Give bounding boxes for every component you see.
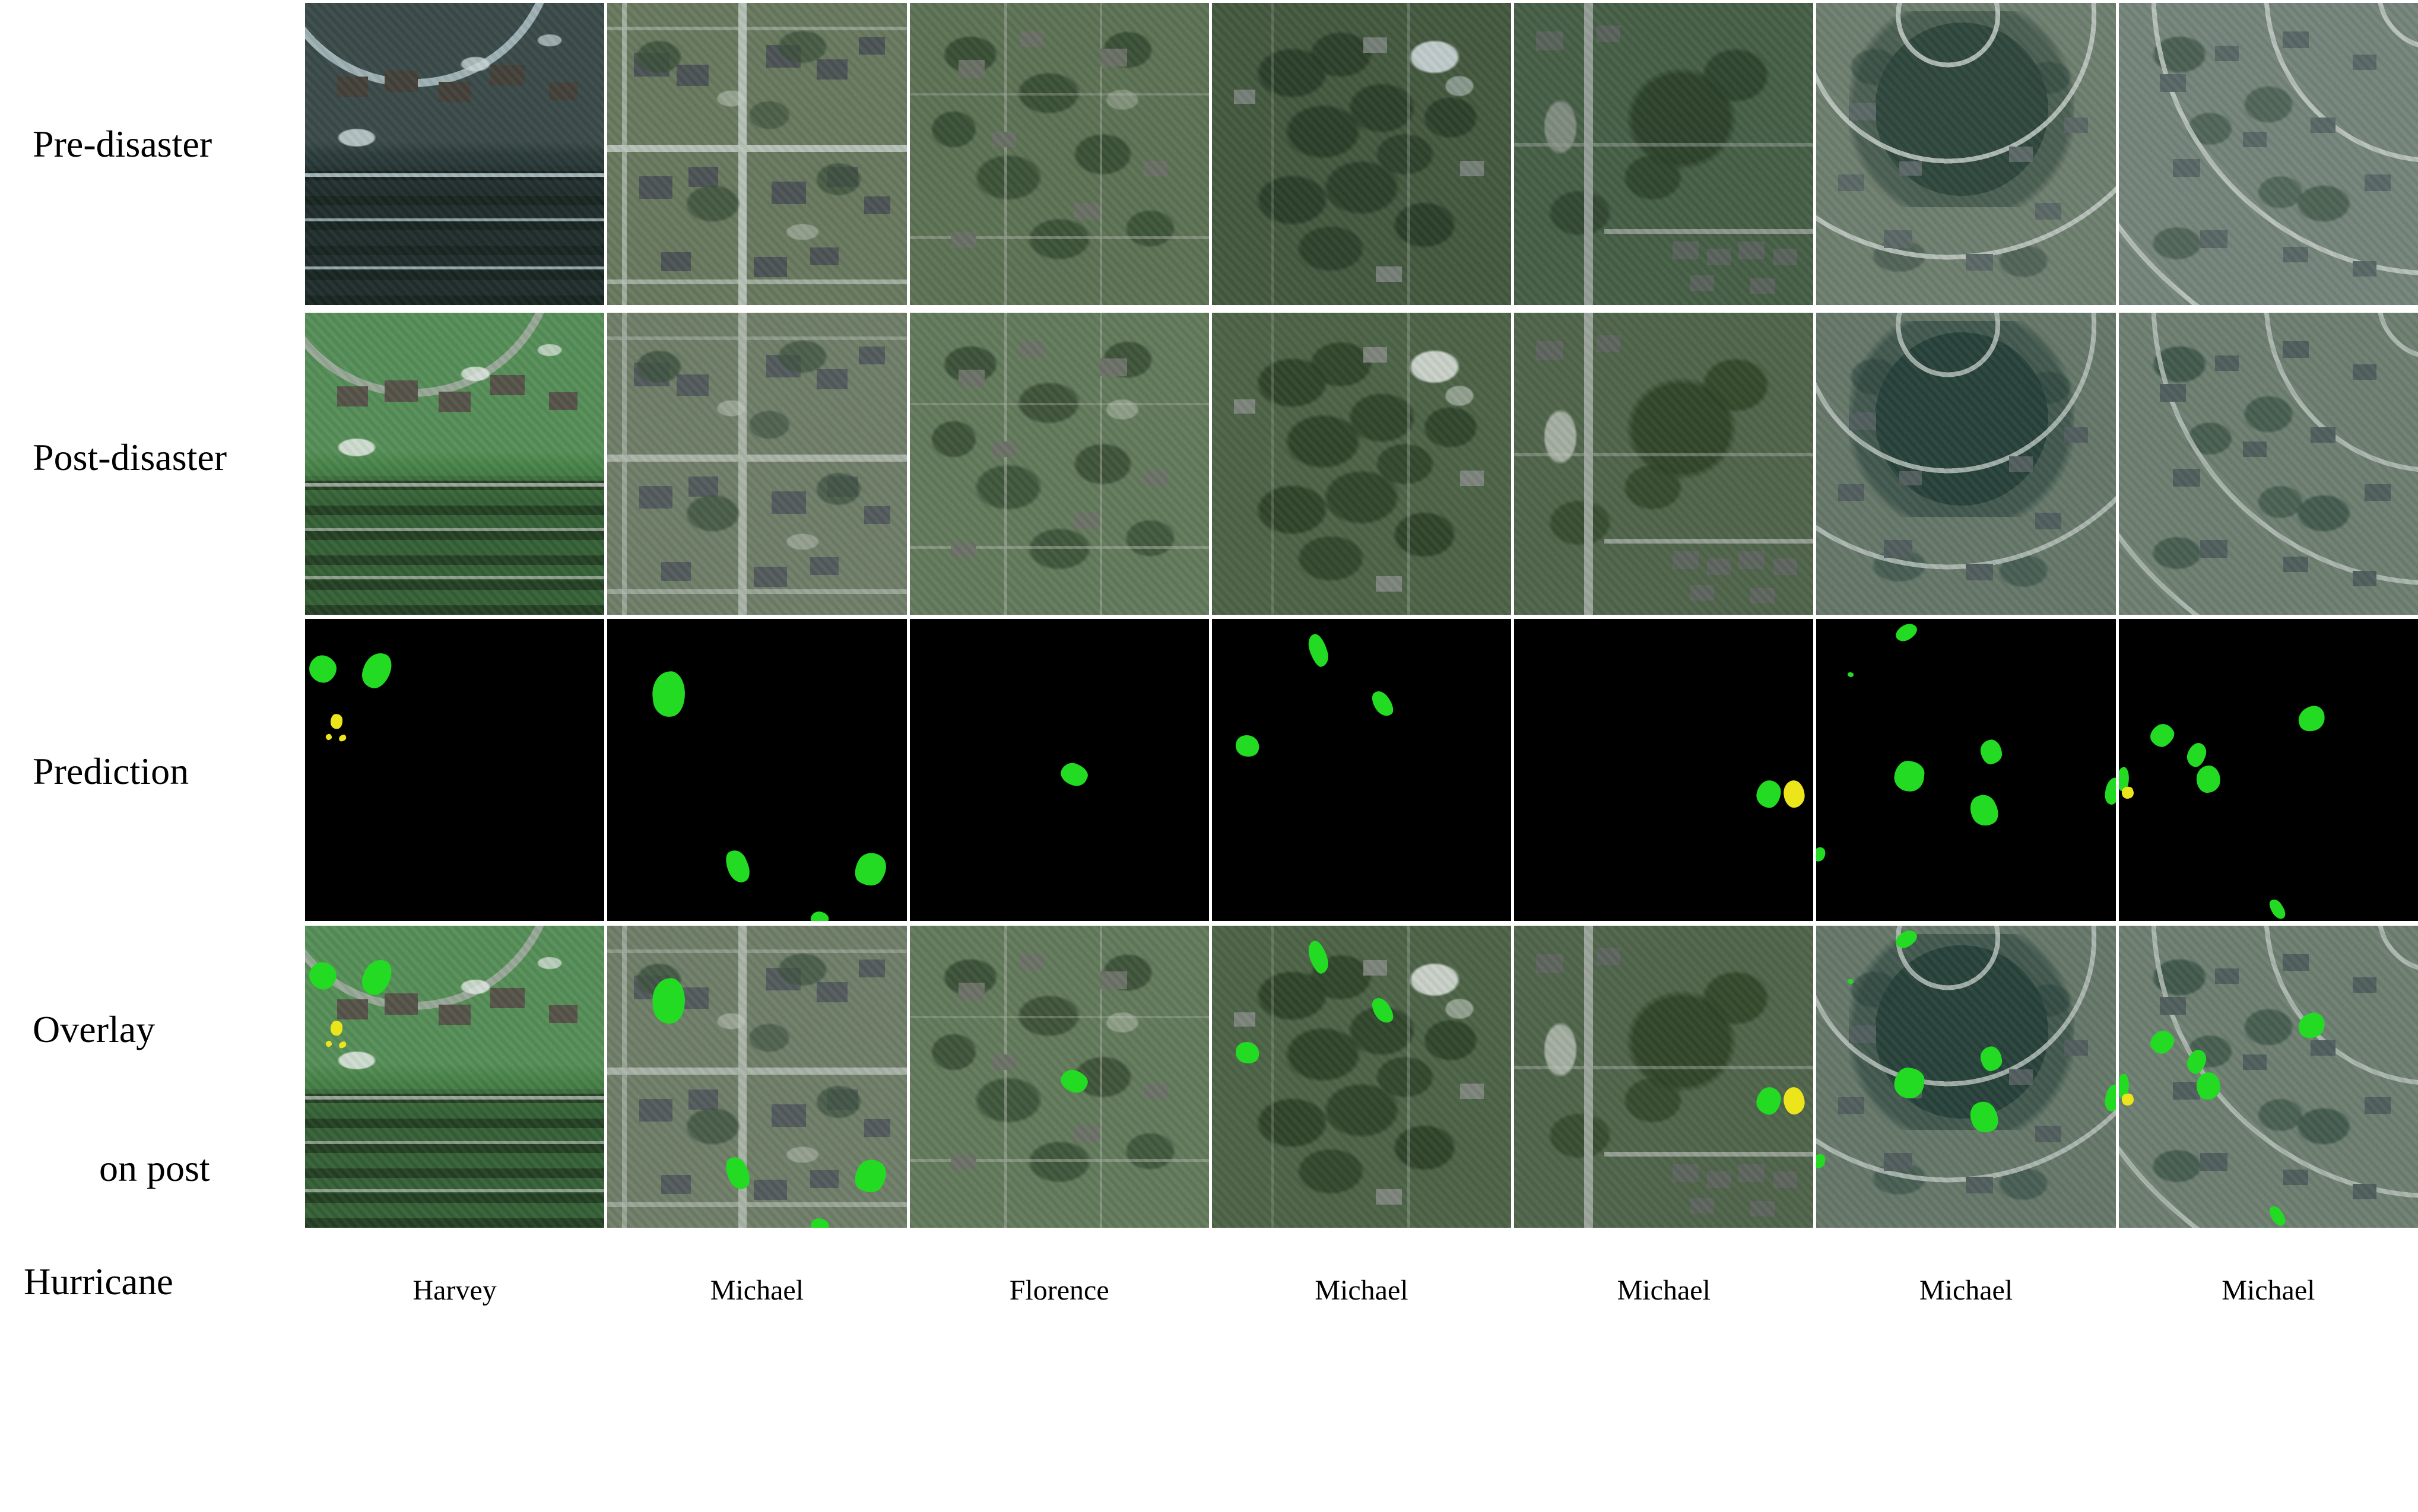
post-disaster-image-michael-col7 xyxy=(2119,313,2418,615)
prediction-row xyxy=(305,619,2418,921)
overlay-row xyxy=(305,926,2418,1228)
damage-blob-green xyxy=(1754,779,1783,810)
damage-blob-green xyxy=(1816,845,1828,864)
row-label-prediction: Prediction xyxy=(33,751,189,792)
post-disaster-image-michael-col6 xyxy=(1816,313,2115,615)
hurricane-name-label-col7: Michael xyxy=(2119,1271,2418,1310)
overlay-on-post-image-michael-col2 xyxy=(607,926,906,1228)
prediction-mask-florence-col3 xyxy=(910,619,1209,921)
damage-blob-green xyxy=(1847,978,1854,984)
pre-disaster-image-florence-col3 xyxy=(910,3,1209,305)
paper-figure: Pre-disaster Post-disaster Prediction Ov… xyxy=(0,0,2418,1512)
damage-blob-yellow xyxy=(325,1040,332,1047)
post-disaster-image-harvey-col1 xyxy=(305,313,604,615)
pre-disaster-image-michael-col7 xyxy=(2119,3,2418,305)
damage-blob-green xyxy=(305,957,342,995)
damage-blob-green xyxy=(2296,703,2328,734)
damage-blob-green xyxy=(1847,671,1854,678)
damage-blob-yellow xyxy=(331,1021,343,1036)
damage-blob-green xyxy=(1979,738,2004,766)
damage-blob-green xyxy=(1305,633,1331,669)
damage-blob-green xyxy=(2196,1072,2220,1100)
overlay-on-post-image-michael-col5 xyxy=(1514,926,1813,1228)
damage-blob-green xyxy=(1233,732,1262,760)
hurricane-name-label-col3: Florence xyxy=(910,1271,1209,1310)
damage-blob-green xyxy=(721,847,753,886)
hurricane-name-row: HarveyMichaelFlorenceMichaelMichaelMicha… xyxy=(305,1271,2418,1310)
pre-disaster-image-michael-col5 xyxy=(1514,3,1813,305)
overlay-on-post-image-michael-col4 xyxy=(1212,926,1511,1228)
hurricane-name-label-col4: Michael xyxy=(1212,1271,1511,1310)
damage-blob-green xyxy=(1979,1045,2004,1073)
post-disaster-image-florence-col3 xyxy=(910,313,1209,615)
damage-blob-green xyxy=(1816,1152,1828,1171)
pre-disaster-image-michael-col4 xyxy=(1212,3,1511,305)
overlay-label-line2: on post xyxy=(99,1147,210,1189)
damage-blob-green xyxy=(2146,1027,2178,1057)
damage-blob-green xyxy=(305,650,342,688)
row-label-post-disaster: Post-disaster xyxy=(33,437,227,478)
hurricane-name-label-col5: Michael xyxy=(1514,1271,1813,1310)
damage-blob-green xyxy=(849,848,892,892)
damage-blob-yellow xyxy=(325,733,332,741)
prediction-mask-michael-col6 xyxy=(1816,619,2115,921)
damage-blob-green xyxy=(1965,1097,2003,1138)
damage-blob-green xyxy=(650,670,687,719)
damage-blob-green xyxy=(849,1155,892,1199)
damage-blob-green xyxy=(358,955,395,998)
prediction-mask-michael-col7 xyxy=(2119,619,2418,921)
pre-disaster-image-harvey-col1 xyxy=(305,3,604,305)
row-label-pre-disaster: Pre-disaster xyxy=(33,123,212,165)
damage-blob-green xyxy=(2196,765,2220,793)
overlay-on-post-image-michael-col6 xyxy=(1816,926,2115,1228)
prediction-mask-harvey-col1 xyxy=(305,619,604,921)
damage-blob-green xyxy=(810,1217,830,1228)
hurricane-name-label-col6: Michael xyxy=(1816,1271,2115,1310)
damage-blob-green xyxy=(1754,1085,1783,1117)
damage-blob-yellow xyxy=(331,714,343,729)
damage-blob-green xyxy=(2267,1203,2288,1228)
overlay-on-post-image-florence-col3 xyxy=(910,926,1209,1228)
damage-blob-green xyxy=(2296,1010,2328,1041)
damage-blob-green xyxy=(1893,927,1919,951)
row-label-overlay-on-post: Overlay on post xyxy=(33,995,210,1203)
pre-disaster-row xyxy=(305,3,2418,305)
damage-blob-green xyxy=(1058,760,1091,790)
overlay-label-line1: Overlay xyxy=(33,1008,155,1050)
hurricane-name-label-col1: Harvey xyxy=(305,1271,604,1310)
overlay-on-post-image-michael-col7 xyxy=(2119,926,2418,1228)
post-disaster-row xyxy=(305,313,2418,615)
damage-blob-green xyxy=(358,649,395,691)
damage-blob-green xyxy=(1368,688,1397,719)
overlay-on-post-image-harvey-col1 xyxy=(305,926,604,1228)
damage-blob-green xyxy=(2103,1084,2116,1113)
pre-disaster-image-michael-col2 xyxy=(607,3,906,305)
damage-blob-green xyxy=(650,977,687,1025)
damage-blob-green xyxy=(1368,995,1397,1026)
damage-blob-green xyxy=(721,1154,753,1193)
damage-blob-green xyxy=(1893,620,1919,644)
hurricane-name-label-col2: Michael xyxy=(607,1271,906,1310)
damage-blob-green xyxy=(810,910,830,921)
post-disaster-image-michael-col2 xyxy=(607,313,906,615)
damage-blob-green xyxy=(1233,1039,1262,1066)
prediction-mask-michael-col4 xyxy=(1212,619,1511,921)
damage-blob-yellow xyxy=(1782,1087,1806,1116)
damage-blob-green xyxy=(1058,1066,1091,1097)
damage-blob-green xyxy=(1305,939,1331,976)
damage-blob-green xyxy=(1893,1066,1925,1100)
damage-blob-green xyxy=(2103,777,2116,806)
prediction-mask-michael-col2 xyxy=(607,619,906,921)
post-disaster-image-michael-col4 xyxy=(1212,313,1511,615)
prediction-mask-michael-col5 xyxy=(1514,619,1813,921)
damage-blob-green xyxy=(1965,790,2003,831)
damage-blob-green xyxy=(2146,720,2178,751)
damage-blob-green xyxy=(2184,741,2208,769)
damage-blob-green xyxy=(2184,1047,2208,1076)
pre-disaster-image-michael-col6 xyxy=(1816,3,2115,305)
post-disaster-image-michael-col5 xyxy=(1514,313,1813,615)
damage-blob-green xyxy=(1893,760,1925,793)
row-label-hurricane: Hurricane xyxy=(24,1262,173,1303)
damage-blob-yellow xyxy=(1782,780,1806,809)
damage-blob-green xyxy=(2267,897,2288,921)
damage-blob-yellow xyxy=(338,1040,347,1049)
damage-blob-yellow xyxy=(338,733,347,742)
